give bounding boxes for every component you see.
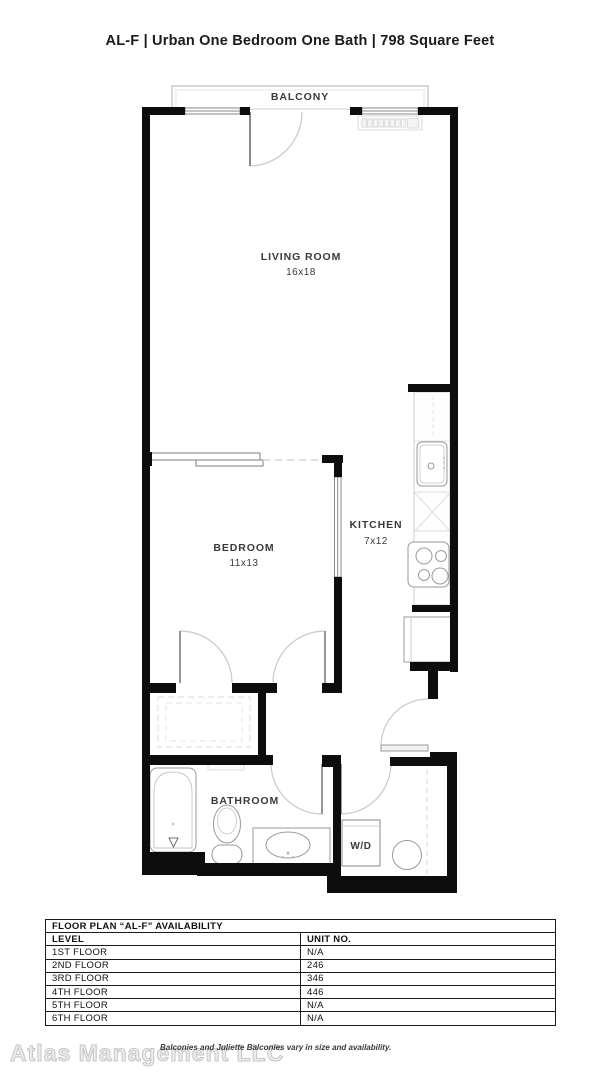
balcony-door-swing <box>250 109 352 166</box>
column-header-unit: UNIT NO. <box>301 933 556 946</box>
window-icon <box>185 108 418 577</box>
entry-door-swing <box>381 699 428 751</box>
availability-table-title: FLOOR PLAN “AL-F” AVAILABILITY <box>46 920 556 933</box>
column-header-level: LEVEL <box>46 933 301 946</box>
table-row: 2ND FLOOR 246 <box>46 959 556 972</box>
water-heater <box>393 841 422 870</box>
table-row: 5TH FLOOR N/A <box>46 999 556 1012</box>
kitchen-sink <box>417 442 447 486</box>
closet-wardrobe <box>158 697 250 747</box>
bedroom-dimensions: 11x13 <box>229 558 258 569</box>
disclaimer-text: Balconies and Juliette Balconies vary in… <box>160 1043 391 1052</box>
table-row: 6TH FLOOR N/A <box>46 1012 556 1025</box>
balcony-label: BALCONY <box>271 91 329 103</box>
bedroom-label: BEDROOM <box>213 542 274 554</box>
table-row: 3RD FLOOR 346 <box>46 972 556 985</box>
laundry-door-swing <box>341 763 391 814</box>
table-row: 1ST FLOOR N/A <box>46 946 556 959</box>
table-row: 4TH FLOOR 446 <box>46 985 556 998</box>
floor-plan-page: AL-F | Urban One Bedroom One Bath | 798 … <box>0 0 600 1080</box>
closet-door-swing <box>180 631 232 683</box>
toilet <box>212 805 242 869</box>
living-room-label: LIVING ROOM <box>261 251 341 263</box>
bathtub <box>150 768 196 852</box>
bedroom-sliding-door <box>150 453 322 466</box>
vanity-sink <box>253 828 330 866</box>
bedroom-door-swing <box>273 631 325 683</box>
floor-plan-drawing: BALCONY LIVING ROOM 16x18 BEDROOM 11x13 … <box>0 0 600 910</box>
kitchen-dimensions: 7x12 <box>364 536 388 547</box>
stove <box>408 542 449 587</box>
heater-unit <box>358 116 422 130</box>
availability-table: FLOOR PLAN “AL-F” AVAILABILITY LEVEL UNI… <box>45 919 556 1026</box>
bathroom-label: BATHROOM <box>211 795 279 807</box>
living-room-dimensions: 16x18 <box>286 267 316 278</box>
kitchen-label: KITCHEN <box>350 519 403 531</box>
refrigerator <box>404 617 455 662</box>
laundry-label: W/D <box>350 841 371 852</box>
